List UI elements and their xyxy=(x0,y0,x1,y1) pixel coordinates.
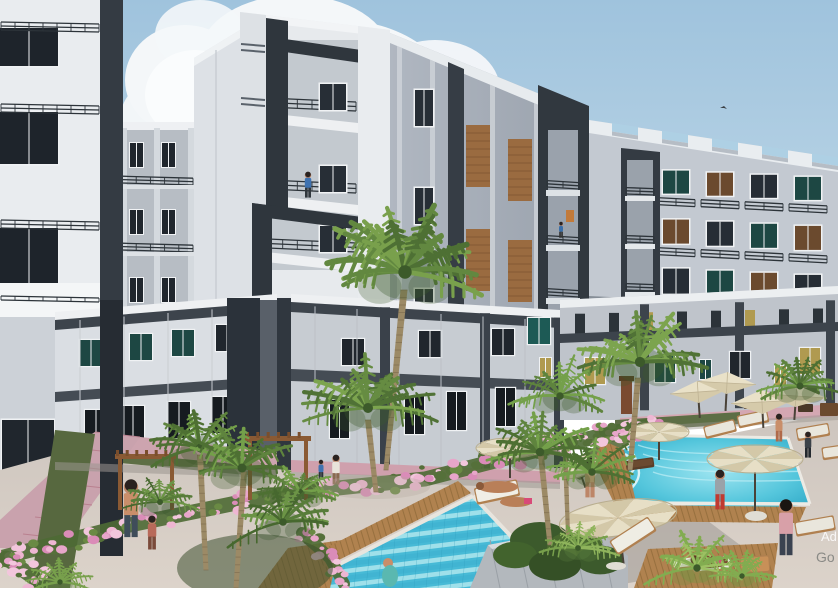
svg-text:Ad: Ad xyxy=(821,529,837,544)
svg-text:Go: Go xyxy=(816,549,835,565)
